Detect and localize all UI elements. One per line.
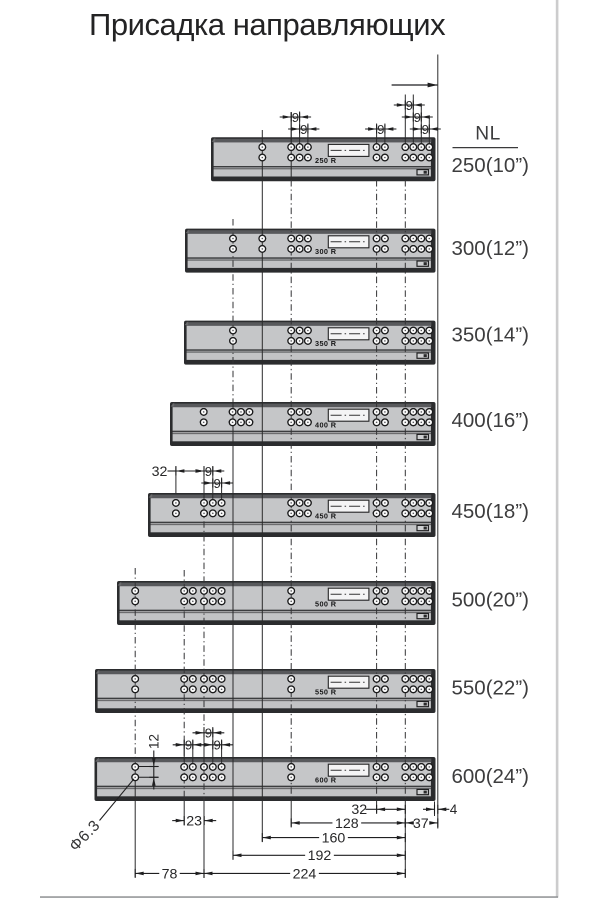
svg-text:600(24”): 600(24”) bbox=[452, 765, 530, 788]
svg-text:Присадка направляющих: Присадка направляющих bbox=[89, 7, 446, 42]
svg-text:9: 9 bbox=[185, 738, 192, 753]
svg-text:9: 9 bbox=[406, 98, 413, 113]
svg-text:9: 9 bbox=[300, 122, 307, 137]
svg-text:NL: NL bbox=[475, 123, 501, 144]
svg-text:450(18”): 450(18”) bbox=[452, 500, 530, 523]
svg-text:450 R: 450 R bbox=[315, 512, 337, 521]
svg-text:250(10”): 250(10”) bbox=[452, 154, 530, 177]
svg-text:500 R: 500 R bbox=[315, 600, 337, 609]
svg-text:9: 9 bbox=[377, 122, 384, 137]
svg-text:9: 9 bbox=[292, 110, 299, 125]
svg-text:300(12”): 300(12”) bbox=[452, 237, 530, 260]
svg-text:9: 9 bbox=[422, 122, 429, 137]
svg-text:500(20”): 500(20”) bbox=[452, 589, 530, 612]
svg-text:37: 37 bbox=[413, 816, 429, 832]
svg-text:400(16”): 400(16”) bbox=[452, 409, 530, 432]
svg-text:Φ6.3: Φ6.3 bbox=[66, 817, 103, 855]
svg-text:550(22”): 550(22”) bbox=[452, 677, 530, 700]
svg-text:550 R: 550 R bbox=[315, 688, 337, 697]
svg-text:300 R: 300 R bbox=[315, 247, 337, 256]
svg-text:12: 12 bbox=[147, 734, 162, 749]
svg-text:400 R: 400 R bbox=[315, 421, 337, 430]
svg-text:192: 192 bbox=[308, 848, 332, 864]
svg-text:9: 9 bbox=[205, 726, 212, 741]
svg-text:350 R: 350 R bbox=[315, 339, 337, 348]
svg-text:160: 160 bbox=[322, 831, 346, 847]
svg-text:9: 9 bbox=[205, 464, 212, 479]
svg-text:9: 9 bbox=[414, 110, 421, 125]
svg-text:9: 9 bbox=[214, 738, 221, 753]
svg-text:23: 23 bbox=[186, 814, 202, 830]
svg-text:250 R: 250 R bbox=[315, 156, 337, 165]
svg-text:224: 224 bbox=[293, 866, 317, 882]
svg-text:350(14”): 350(14”) bbox=[452, 324, 530, 347]
svg-text:32: 32 bbox=[152, 464, 168, 480]
svg-text:600 R: 600 R bbox=[315, 776, 337, 785]
svg-text:9: 9 bbox=[214, 476, 221, 491]
svg-text:4: 4 bbox=[450, 802, 458, 817]
svg-text:128: 128 bbox=[335, 816, 359, 832]
svg-text:78: 78 bbox=[162, 866, 178, 882]
